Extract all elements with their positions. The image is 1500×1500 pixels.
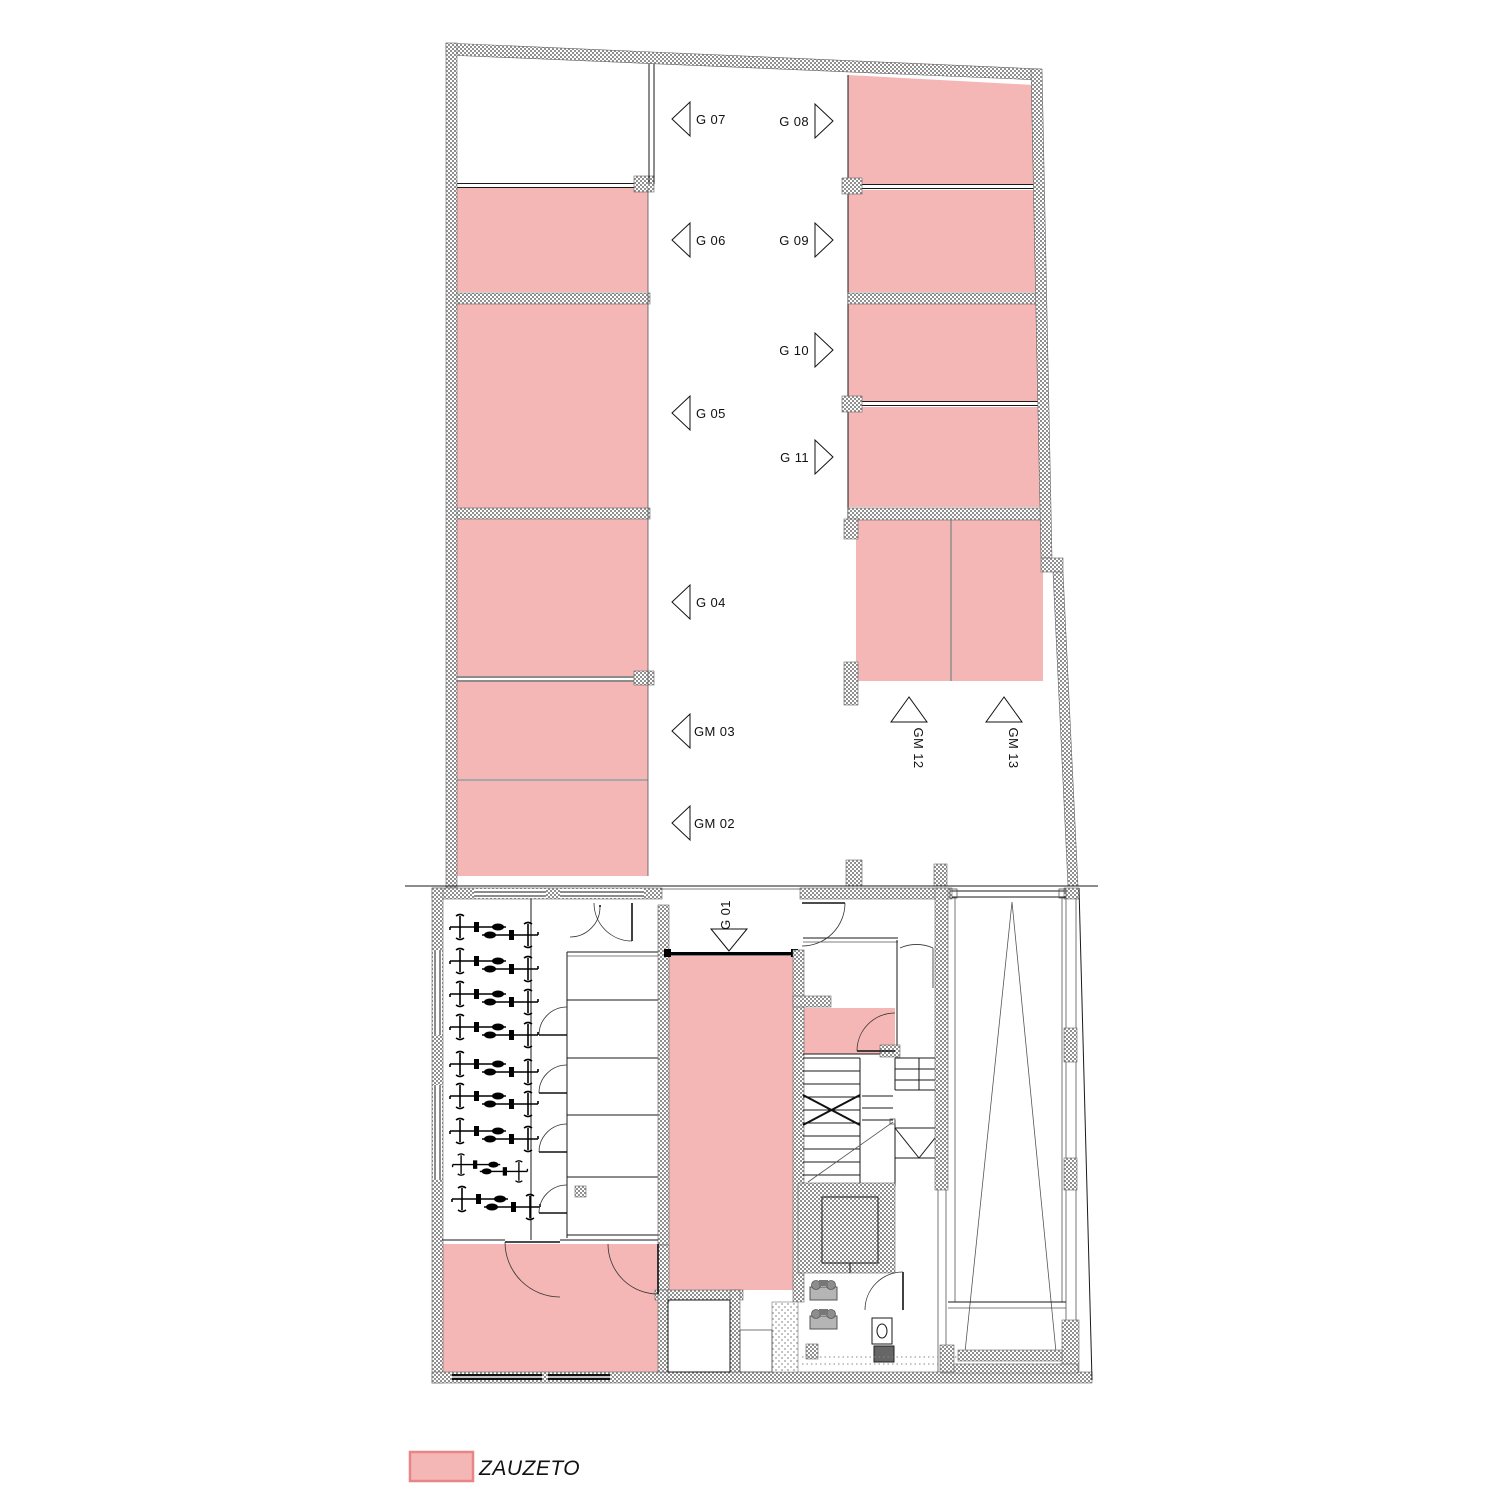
vehicle-ramp <box>940 889 1078 1373</box>
spot-label-gm12: GM 12 <box>911 727 926 768</box>
arrow-g05-icon <box>672 396 690 430</box>
arrow-g01-icon <box>711 929 747 951</box>
stall-g09 <box>848 190 1038 292</box>
spot-label-g08: G 08 <box>779 114 809 129</box>
spot-label-g10: G 10 <box>779 343 809 358</box>
arrow-g10-icon <box>815 333 833 367</box>
spot-label-gm03: GM 03 <box>694 724 735 739</box>
arrow-g04-icon <box>672 585 690 619</box>
floor-plan-drawing: G 07 G 06 G 05 G 04 GM 03 GM 02 G 08 G 0… <box>0 0 1500 1500</box>
electrical-box-icon <box>874 1346 894 1362</box>
arrow-g07-icon <box>672 102 690 136</box>
stall-gm03 <box>456 682 648 779</box>
storage-lockers <box>539 905 669 1245</box>
stall-fills-left <box>456 188 648 876</box>
stall-g08 <box>848 75 1037 184</box>
upper-parking-area: G 07 G 06 G 05 G 04 GM 03 GM 02 G 08 G 0… <box>405 43 1098 951</box>
spot-label-g01: G 01 <box>718 900 733 930</box>
pump-equipment-icon <box>810 1280 837 1329</box>
arrow-gm12-icon <box>891 697 927 722</box>
spot-label-g09: G 09 <box>779 233 809 248</box>
spot-label-g05: G 05 <box>696 406 726 421</box>
stall-g04 <box>456 519 648 676</box>
utility-rooms <box>658 1290 798 1372</box>
bike-storage-room <box>450 899 540 1240</box>
arrow-g09-icon <box>815 223 833 257</box>
stall-g05 <box>456 304 648 508</box>
spot-label-gm13: GM 13 <box>1006 727 1021 768</box>
legend: ZAUZETO <box>410 1452 580 1481</box>
lower-building <box>432 888 1092 1383</box>
arrow-g11-icon <box>815 440 833 474</box>
garage-g01-area <box>668 956 793 1290</box>
elevator-shaft <box>798 1183 895 1273</box>
legend-occupied-label: ZAUZETO <box>478 1457 580 1480</box>
stair-ramp-wall <box>935 888 948 1190</box>
arrow-g08-icon <box>815 104 833 138</box>
floor-plan-canvas: G 07 G 06 G 05 G 04 GM 03 GM 02 G 08 G 0… <box>0 0 1500 1500</box>
spot-label-gm02: GM 02 <box>694 816 735 831</box>
arrow-gm02-icon <box>672 806 690 840</box>
stall-g06 <box>456 188 648 292</box>
arrow-gm03-icon <box>672 714 690 748</box>
toilet-icon <box>872 1318 892 1344</box>
arrow-gm13-icon <box>986 697 1022 722</box>
spot-label-g07: G 07 <box>696 112 726 127</box>
stall-g10 <box>848 304 1041 401</box>
stall-fills-right <box>848 75 1044 681</box>
stall-gm02 <box>456 781 648 876</box>
legend-occupied-swatch <box>410 1452 473 1481</box>
arrow-g06-icon <box>672 223 690 257</box>
spot-label-g04: G 04 <box>696 595 726 610</box>
occupied-corner-room <box>442 1244 658 1372</box>
spot-label-g06: G 06 <box>696 233 726 248</box>
spot-label-g11: G 11 <box>780 450 809 465</box>
stall-gm12-gm13 <box>856 520 1043 681</box>
stall-g11 <box>848 407 1044 507</box>
staircase <box>803 1058 943 1186</box>
